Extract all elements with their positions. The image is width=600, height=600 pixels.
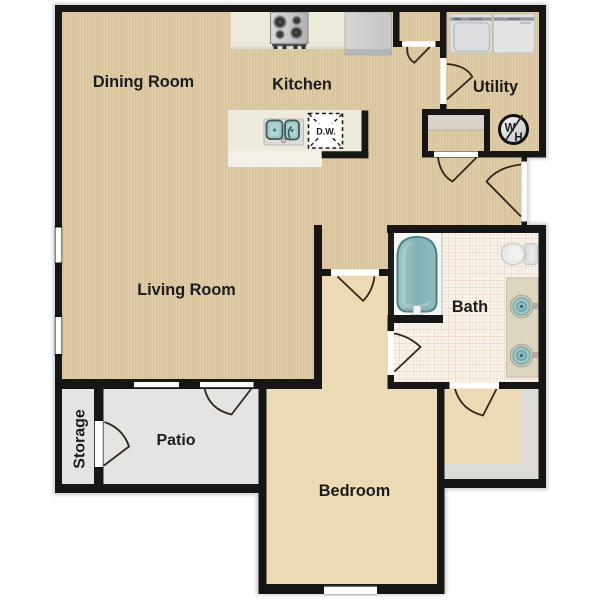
svg-text:Bedroom: Bedroom — [319, 482, 390, 500]
svg-text:Kitchen: Kitchen — [272, 76, 332, 94]
svg-text:Patio: Patio — [156, 432, 195, 449]
svg-text:Bath: Bath — [452, 298, 488, 316]
svg-text:Storage: Storage — [72, 409, 89, 469]
svg-text:Utility: Utility — [473, 78, 518, 96]
svg-text:H: H — [514, 132, 522, 144]
svg-text:D.W.: D.W. — [316, 126, 336, 136]
svg-text:Dining Room: Dining Room — [93, 73, 194, 91]
svg-text:Living Room: Living Room — [137, 281, 236, 299]
